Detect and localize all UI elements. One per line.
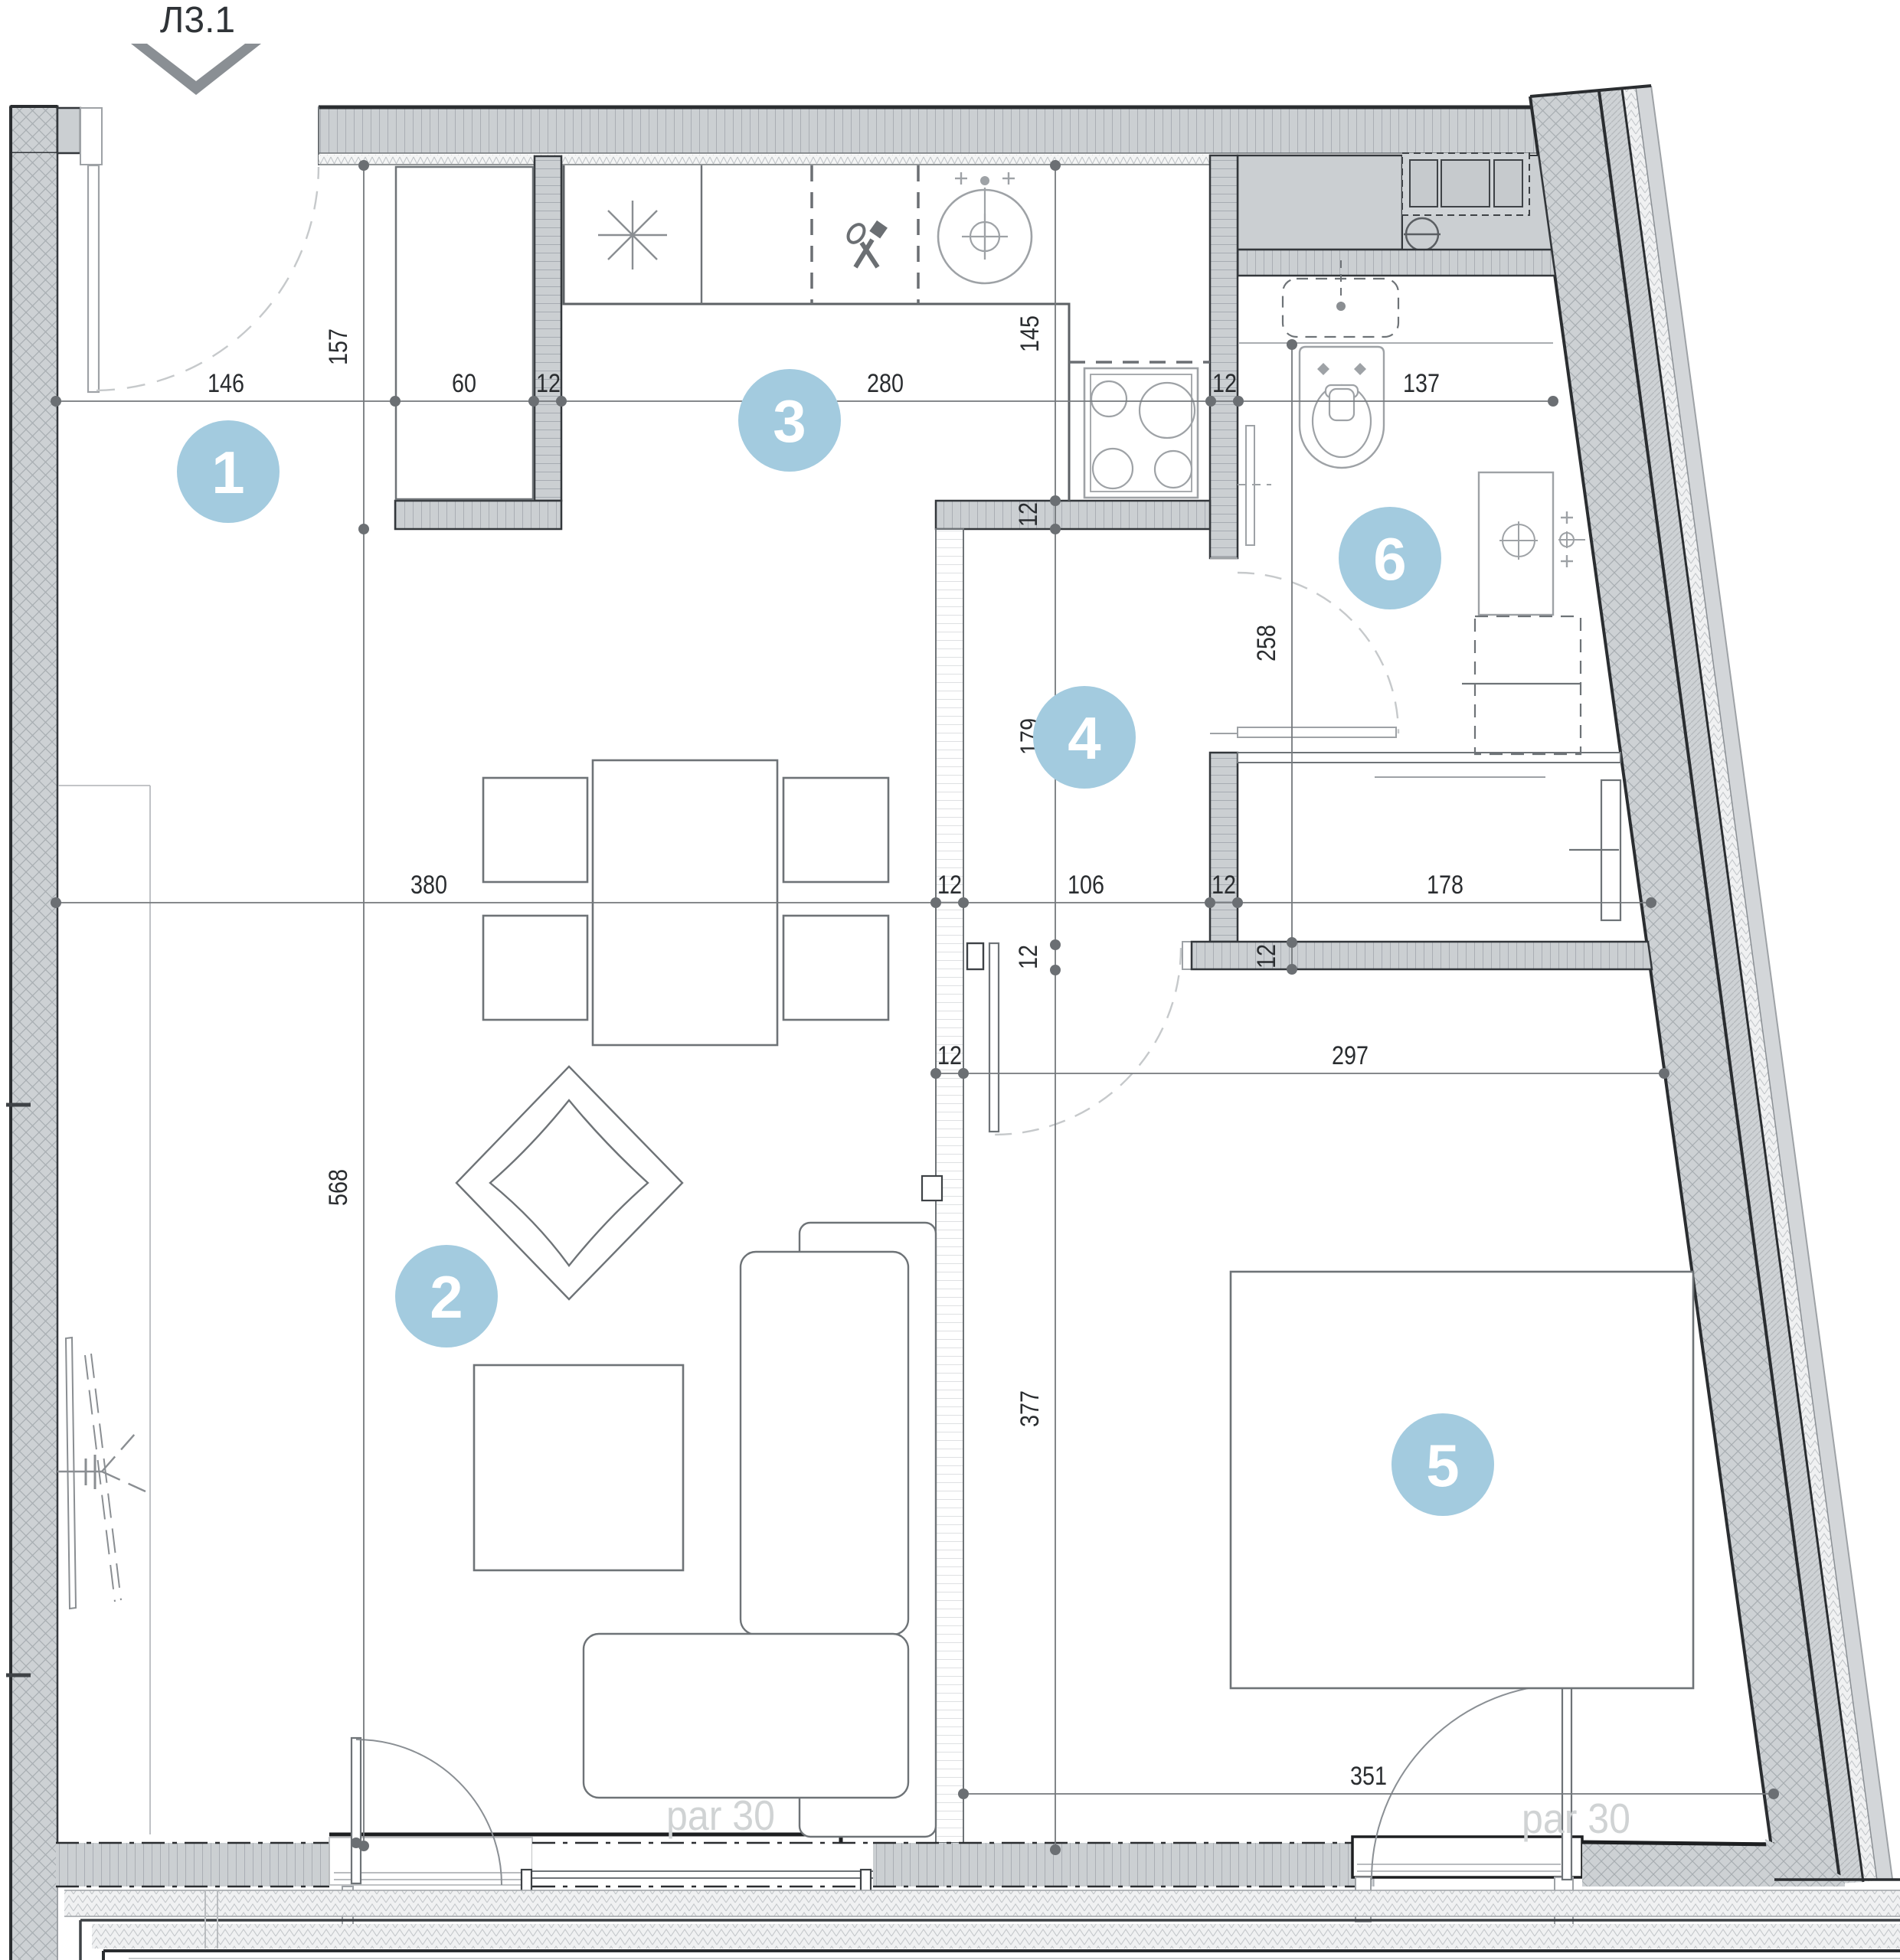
- svg-text:106: 106: [1068, 871, 1104, 900]
- svg-text:146: 146: [208, 369, 244, 398]
- svg-text:6: 6: [1373, 525, 1406, 593]
- svg-text:280: 280: [867, 369, 904, 398]
- svg-text:3: 3: [773, 387, 806, 455]
- svg-text:Л3.1: Л3.1: [160, 0, 235, 41]
- svg-text:12: 12: [937, 1041, 962, 1070]
- svg-text:par 30: par 30: [666, 1792, 775, 1839]
- svg-text:380: 380: [410, 871, 447, 900]
- svg-text:5: 5: [1426, 1432, 1459, 1499]
- svg-text:4: 4: [1068, 704, 1100, 772]
- svg-text:145: 145: [1015, 315, 1045, 352]
- svg-text:137: 137: [1403, 369, 1440, 398]
- svg-text:12: 12: [1252, 944, 1281, 969]
- svg-text:351: 351: [1350, 1762, 1387, 1791]
- svg-text:60: 60: [452, 369, 476, 398]
- svg-text:12: 12: [1014, 945, 1043, 969]
- svg-text:2: 2: [430, 1263, 463, 1331]
- svg-text:12: 12: [1014, 502, 1043, 527]
- svg-text:568: 568: [324, 1169, 353, 1206]
- svg-text:12: 12: [536, 369, 561, 398]
- svg-text:1: 1: [211, 439, 244, 506]
- svg-text:12: 12: [1212, 871, 1236, 900]
- svg-text:297: 297: [1332, 1041, 1369, 1070]
- svg-text:178: 178: [1427, 871, 1463, 900]
- svg-text:377: 377: [1015, 1390, 1045, 1427]
- svg-text:par 30: par 30: [1522, 1795, 1630, 1842]
- svg-text:12: 12: [1212, 369, 1237, 398]
- svg-text:12: 12: [937, 871, 962, 900]
- svg-text:258: 258: [1252, 625, 1281, 661]
- svg-text:157: 157: [324, 328, 353, 365]
